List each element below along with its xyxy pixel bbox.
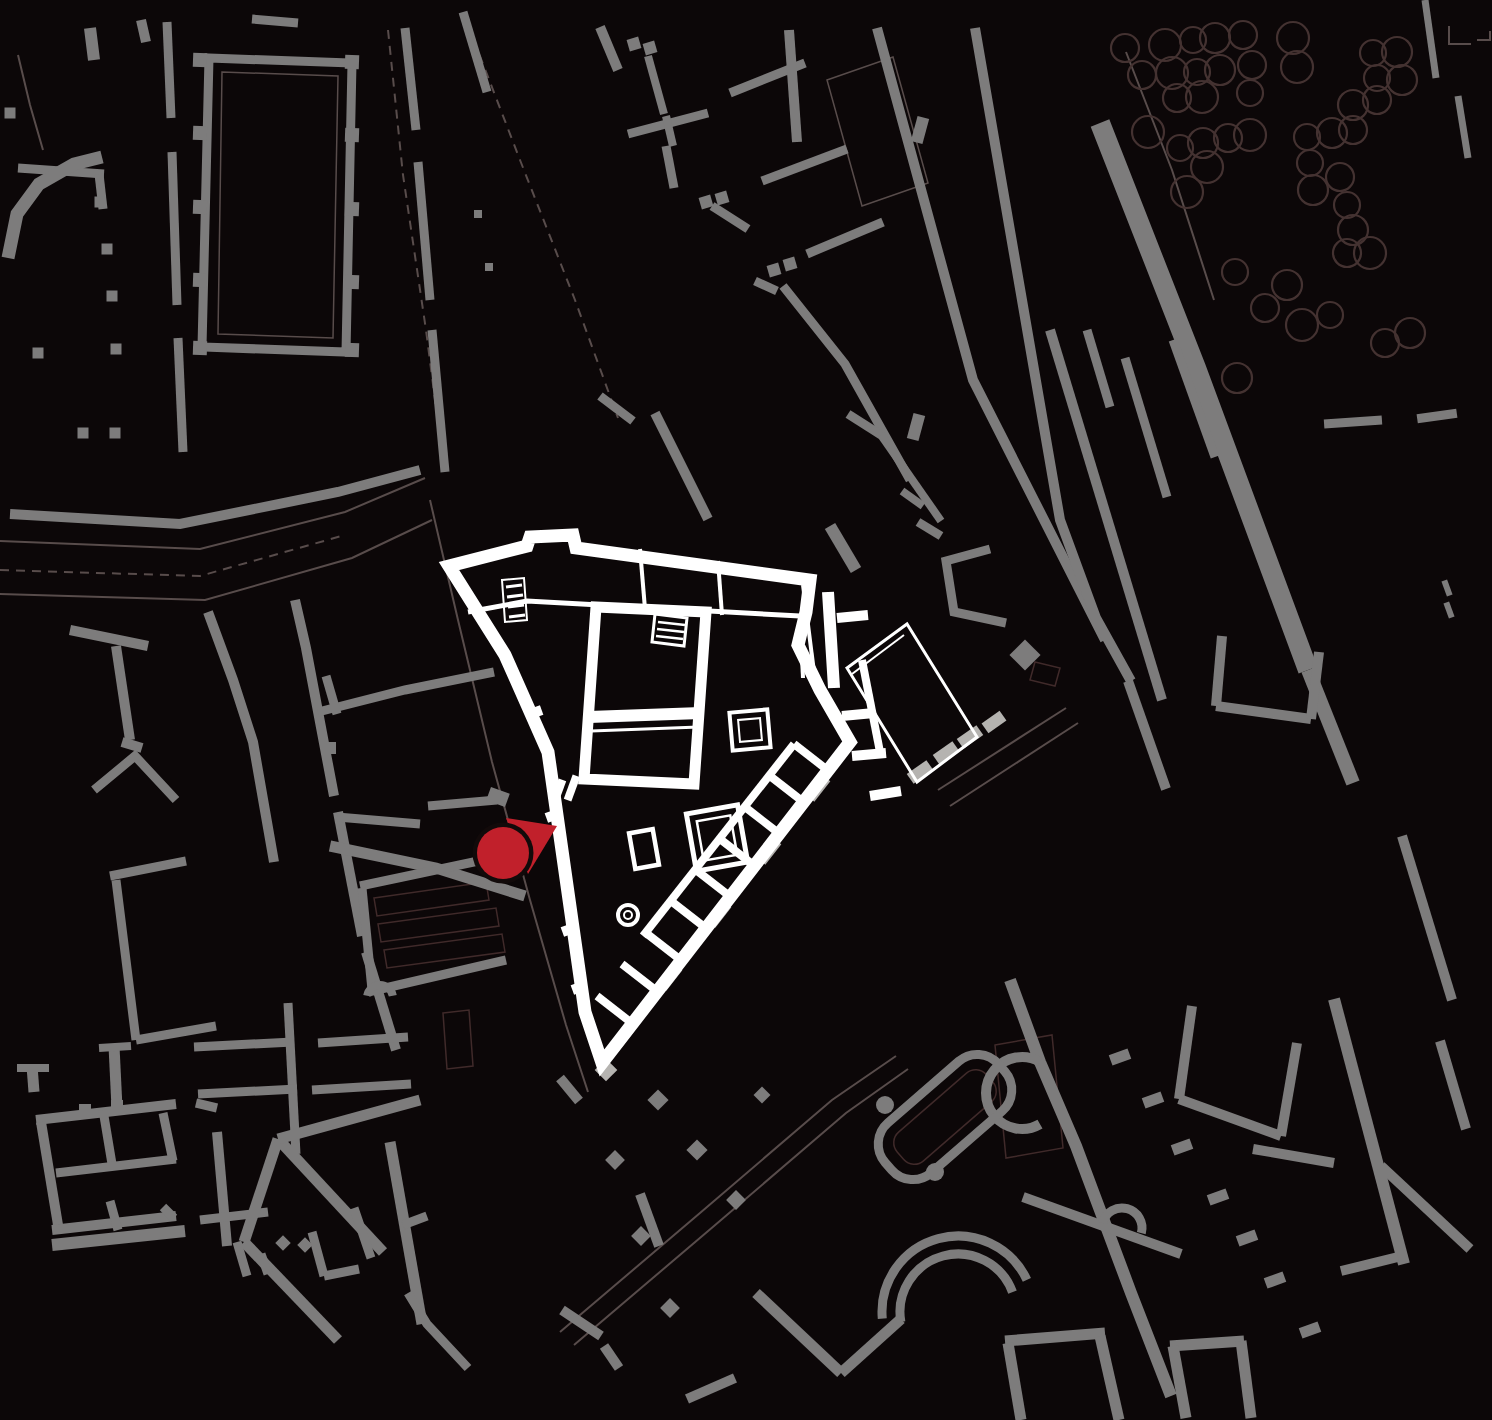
site-plan-svg: [0, 0, 1492, 1420]
site-plan-map: [0, 0, 1492, 1420]
marker-dot-icon[interactable]: [477, 827, 529, 879]
